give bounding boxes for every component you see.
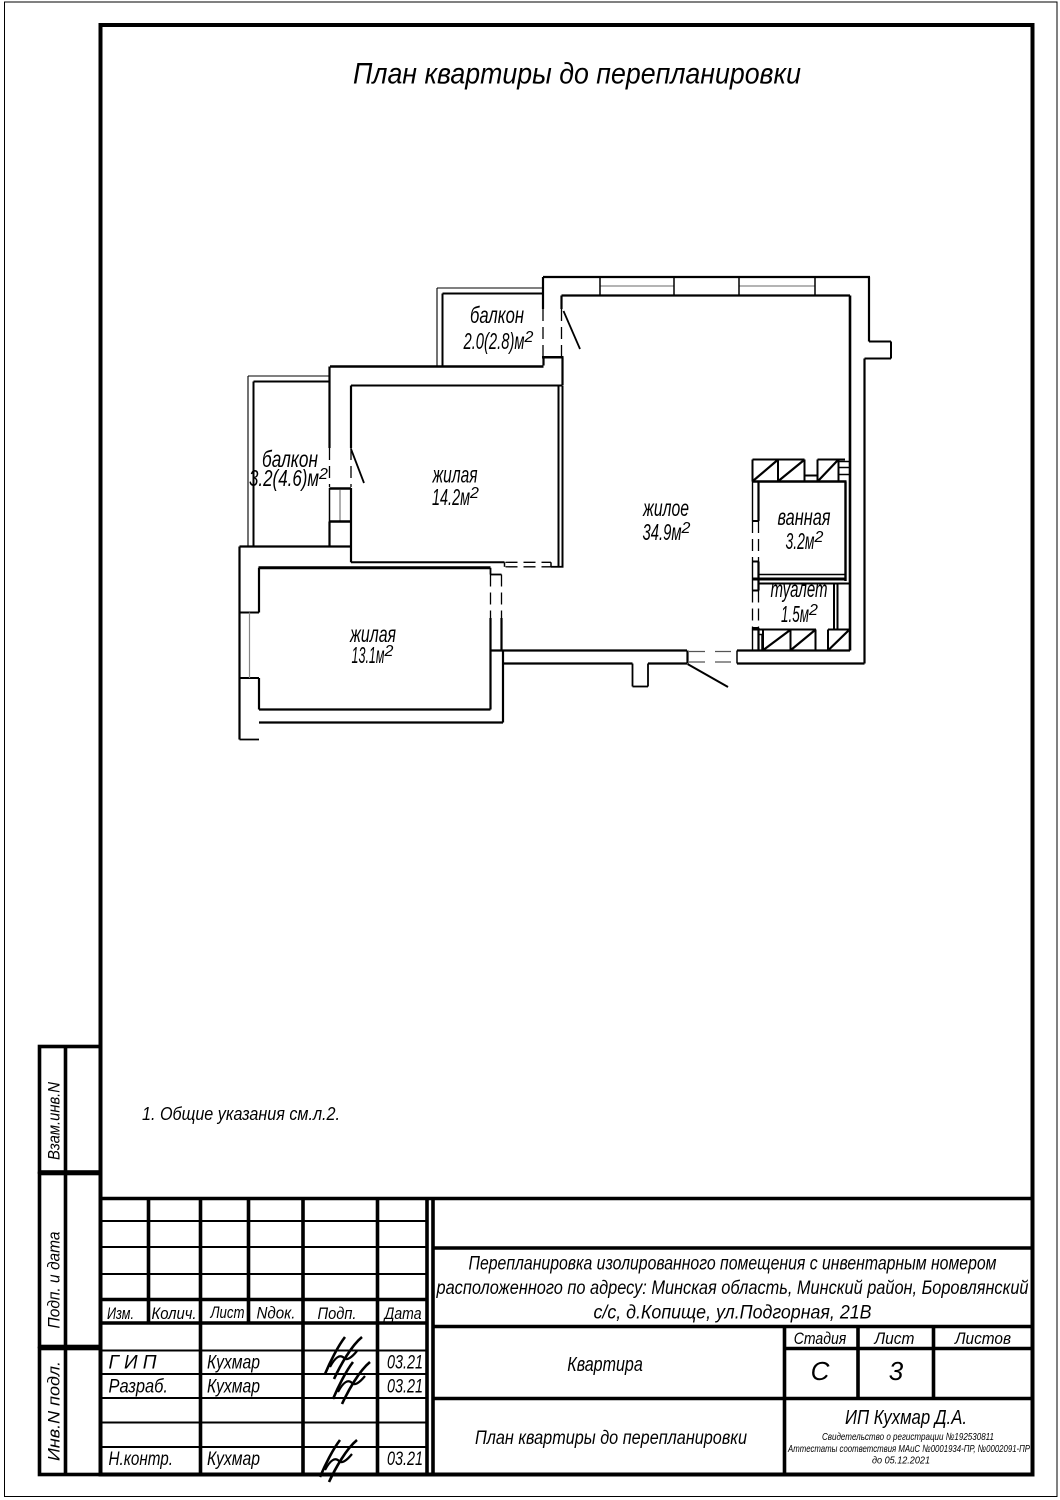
svg-text:Кухмар: Кухмар [207, 1353, 260, 1374]
svg-text:2: 2 [808, 602, 818, 619]
svg-text:Н.контр.: Н.контр. [109, 1449, 174, 1470]
svg-text:Колич.: Колич. [152, 1304, 197, 1323]
svg-text:Разраб.: Разраб. [109, 1377, 169, 1398]
svg-text:Инв.N подл.: Инв.N подл. [45, 1361, 64, 1461]
svg-text:Кухмар: Кухмар [207, 1449, 260, 1470]
svg-text:Изм.: Изм. [107, 1304, 134, 1323]
svg-text:План квартиры до перепланировк: План квартиры до перепланировки [475, 1427, 747, 1449]
svg-text:Свидетельство о регистрации №1: Свидетельство о регистрации №192530811 [822, 1431, 994, 1443]
svg-text:2: 2 [814, 529, 824, 546]
svg-text:14.2м: 14.2м [432, 484, 470, 510]
svg-text:ИП Кухмар Д.А.: ИП Кухмар Д.А. [845, 1407, 967, 1429]
svg-text:Лист: Лист [210, 1303, 245, 1322]
svg-text:С: С [811, 1356, 830, 1386]
svg-text:2.0(2.8)м: 2.0(2.8)м [463, 328, 525, 354]
svg-text:Квартира: Квартира [567, 1354, 643, 1376]
svg-text:Взам.инв.N: Взам.инв.N [45, 1081, 64, 1160]
svg-text:03.21: 03.21 [387, 1377, 423, 1398]
svg-text:2: 2 [469, 485, 479, 502]
svg-text:Аттестаты соответствия МАиС №0: Аттестаты соответствия МАиС №0001934-ПР,… [787, 1443, 1030, 1455]
svg-text:Подп. и дата: Подп. и дата [45, 1232, 64, 1329]
svg-text:Листов: Листов [954, 1329, 1011, 1348]
svg-text:2: 2 [681, 520, 691, 537]
svg-text:туалет: туалет [771, 576, 828, 602]
svg-text:03.21: 03.21 [387, 1449, 423, 1470]
svg-text:34.9м: 34.9м [643, 519, 682, 545]
svg-text:2: 2 [384, 643, 394, 660]
svg-text:ванная: ванная [778, 504, 831, 530]
svg-text:3.2м: 3.2м [786, 528, 815, 554]
svg-text:жилое: жилое [642, 495, 689, 521]
svg-text:1.5м: 1.5м [781, 601, 809, 627]
svg-text:Стадия: Стадия [794, 1329, 847, 1348]
svg-text:расположенного по адресу: Минс: расположенного по адресу: Минская област… [436, 1277, 1029, 1299]
svg-text:13.1м: 13.1м [352, 642, 385, 668]
svg-text:Перепланировка изолированного: Перепланировка изолированного помещения … [469, 1253, 997, 1275]
svg-text:Nдок.: Nдок. [257, 1304, 296, 1323]
svg-text:с/с, д.Копище, ул.Подгорная, 2: с/с, д.Копище, ул.Подгорная, 21В [594, 1302, 872, 1324]
svg-text:03.21: 03.21 [387, 1353, 423, 1374]
svg-text:Дата: Дата [383, 1304, 422, 1323]
svg-text:ГИП: ГИП [109, 1353, 157, 1374]
svg-text:Кухмар: Кухмар [207, 1377, 260, 1398]
svg-text:Подп.: Подп. [318, 1304, 357, 1323]
svg-text:до 05.12.2021: до 05.12.2021 [872, 1455, 930, 1467]
svg-text:План квартиры до перепланировк: План квартиры до перепланировки [353, 58, 801, 91]
svg-text:балкон: балкон [470, 302, 524, 328]
svg-text:2: 2 [524, 329, 534, 346]
svg-text:3.2(4.6)м: 3.2(4.6)м [249, 465, 319, 491]
svg-text:2: 2 [318, 466, 328, 483]
svg-text:Лист: Лист [874, 1329, 915, 1348]
svg-text:3: 3 [889, 1356, 904, 1386]
svg-text:1. Общие указания см.л.2.: 1. Общие указания см.л.2. [142, 1104, 340, 1124]
